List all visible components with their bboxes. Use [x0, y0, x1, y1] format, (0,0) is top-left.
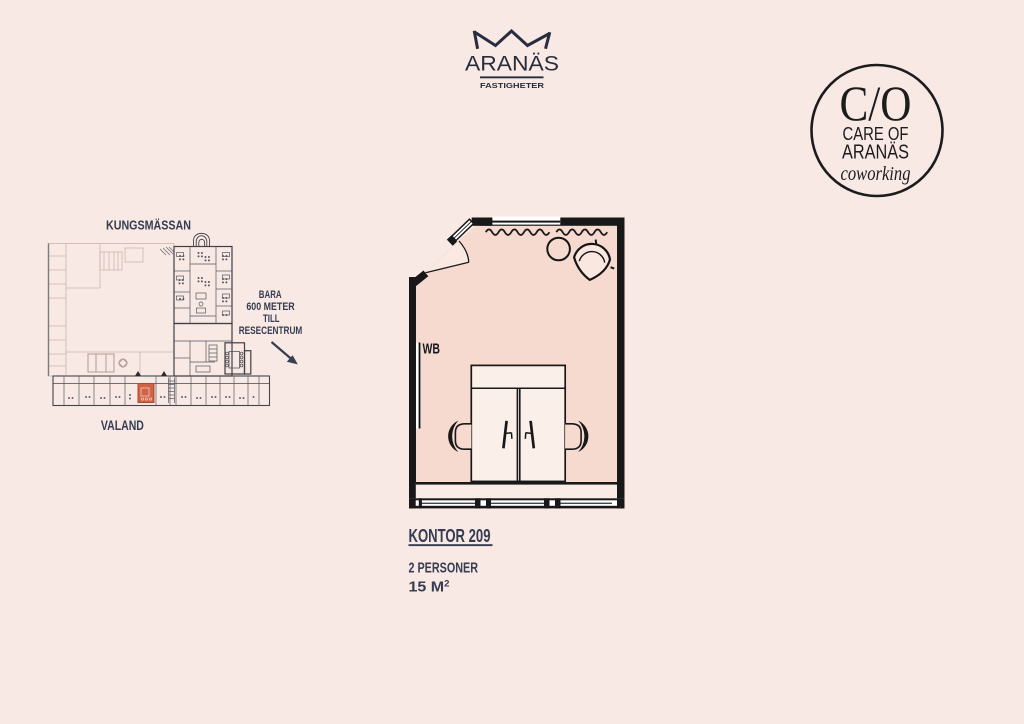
svg-text:600 METER: 600 METER — [246, 301, 294, 313]
svg-text:VALAND: VALAND — [101, 417, 144, 433]
svg-text:coworking: coworking — [841, 163, 911, 185]
svg-text:FASTIGHETER: FASTIGHETER — [480, 81, 545, 90]
svg-text:BARA: BARA — [259, 289, 282, 301]
svg-text:KUNGSMÄSSAN: KUNGSMÄSSAN — [106, 218, 191, 233]
svg-text:TILL: TILL — [263, 313, 280, 325]
svg-text:15 M2: 15 M2 — [409, 578, 450, 595]
svg-text:ARANÄS: ARANÄS — [842, 142, 909, 164]
svg-text:2 PERSONER: 2 PERSONER — [409, 560, 479, 577]
svg-text:RESECENTRUM: RESECENTRUM — [239, 325, 303, 337]
svg-text:WB: WB — [423, 340, 441, 357]
svg-text:KONTOR 209: KONTOR 209 — [409, 526, 491, 546]
svg-text:ARANÄS: ARANÄS — [465, 53, 559, 76]
